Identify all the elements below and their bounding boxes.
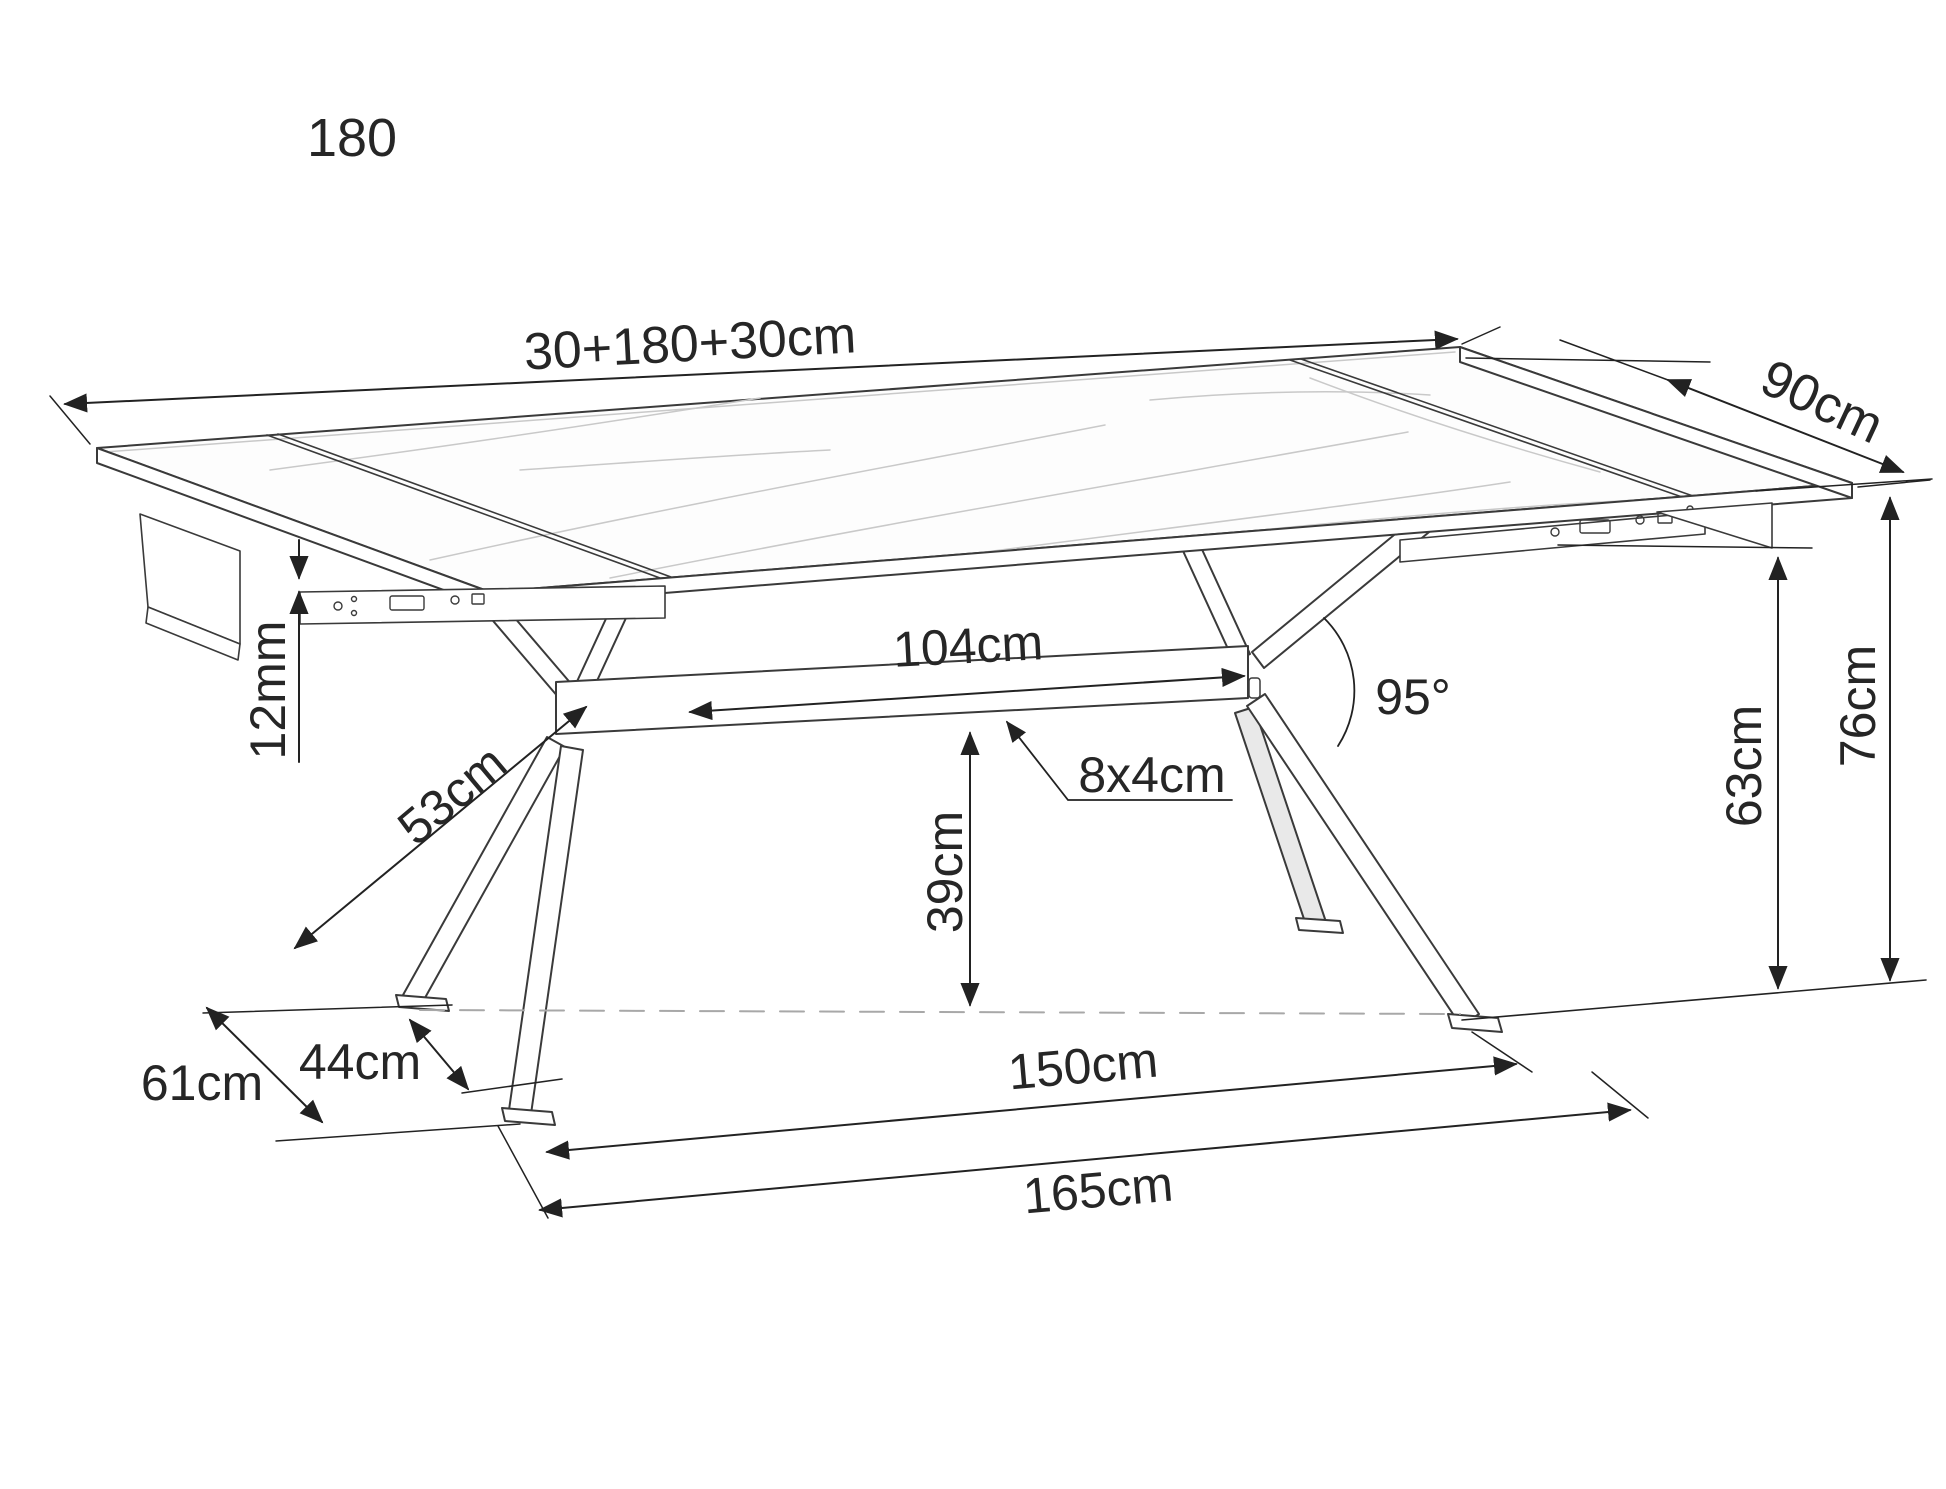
label-feet-span: 150cm (1006, 1035, 1160, 1098)
label-base-depth-outer: 61cm (141, 1058, 263, 1108)
ground-line-right (1462, 980, 1926, 1020)
tabletop (97, 347, 1852, 607)
label-beam-section: 8x4cm (1078, 750, 1225, 800)
angle-arc (1324, 618, 1354, 746)
dim-length-witness-right (1462, 327, 1500, 344)
label-top-thickness: 12mm (243, 621, 293, 760)
label-table-height: 76cm (1833, 645, 1883, 767)
left-rear-foot (396, 995, 449, 1011)
left-front-foot (502, 1108, 555, 1125)
label-caption-180: 180 (307, 111, 397, 165)
ground-line-dashed (420, 1010, 1460, 1014)
dim-span-witness-left (498, 1126, 548, 1218)
label-leg-angle: 95° (1375, 672, 1451, 722)
label-base-depth-inner: 44cm (299, 1037, 421, 1087)
beam-end-plate (1249, 678, 1260, 698)
dim-base-depth-witness-bottom (276, 1124, 520, 1141)
right-front-leg (1247, 694, 1479, 1026)
label-base-length: 165cm (1021, 1159, 1175, 1222)
label-underframe-height: 63cm (1719, 705, 1769, 827)
right-rear-foot (1296, 918, 1343, 933)
label-beam-length: 104cm (892, 617, 1044, 675)
table-dimension-diagram: 180 30+180+30cm 90cm 12mm 104cm 95° 8x4c… (0, 0, 1946, 1489)
label-beam-height: 39cm (920, 811, 970, 933)
left-slide-rail (300, 586, 665, 624)
dim-underframe-witness (1558, 545, 1812, 548)
